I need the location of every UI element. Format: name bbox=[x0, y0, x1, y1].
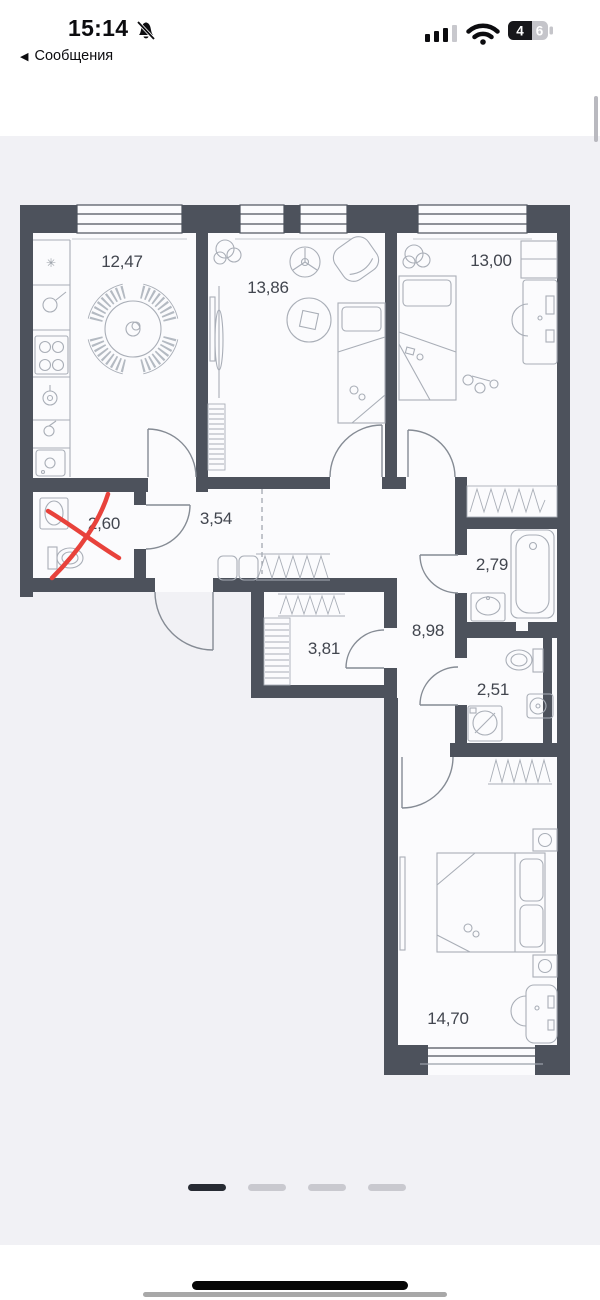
status-icons: 4 6 bbox=[405, 8, 555, 52]
carousel-dash-2[interactable] bbox=[248, 1184, 286, 1191]
carousel-dash-4[interactable] bbox=[368, 1184, 406, 1191]
home-indicator[interactable] bbox=[192, 1281, 408, 1290]
back-to-messages-button[interactable]: ◀ Сообщения bbox=[20, 48, 113, 64]
room-label-kitchen: 12,47 bbox=[101, 252, 143, 271]
back-chevron-icon: ◀ bbox=[20, 50, 28, 63]
carousel-dash-1[interactable] bbox=[188, 1184, 226, 1191]
battery-digit-empty: 6 bbox=[536, 24, 544, 39]
room-label-wc: 2,51 bbox=[477, 680, 509, 699]
floor-plan-image[interactable]: ✳ bbox=[0, 0, 600, 1300]
room-label-bedroom-main: 14,70 bbox=[427, 1009, 469, 1028]
keyboard-divider-bar bbox=[143, 1292, 447, 1297]
room-label-hall: 3,54 bbox=[200, 509, 232, 528]
iphone-screenshot: ✳ bbox=[0, 0, 600, 1300]
carousel-dash-3[interactable] bbox=[308, 1184, 346, 1191]
room-label-living: 13,86 bbox=[247, 278, 289, 297]
bed-icon bbox=[399, 276, 456, 400]
wifi-icon bbox=[469, 26, 498, 45]
fridge-icon: ✳ bbox=[46, 256, 56, 270]
bell-muted-icon bbox=[134, 19, 158, 43]
room-label-storage: 3,81 bbox=[308, 639, 340, 658]
battery-icon: 4 6 bbox=[508, 21, 553, 40]
battery-digit-filled: 4 bbox=[516, 24, 524, 39]
room-label-bedroom-right: 13,00 bbox=[470, 251, 512, 270]
double-bed-icon bbox=[437, 853, 545, 952]
room-label-bathroom: 2,79 bbox=[476, 555, 508, 574]
room-label-hallway: 8,98 bbox=[412, 621, 444, 640]
bed-icon bbox=[338, 303, 385, 423]
cellular-signal-icon bbox=[425, 25, 457, 42]
status-time: 15:14 bbox=[68, 15, 128, 42]
scrollbar-thumb[interactable] bbox=[594, 96, 598, 142]
back-label: Сообщения bbox=[34, 48, 113, 64]
